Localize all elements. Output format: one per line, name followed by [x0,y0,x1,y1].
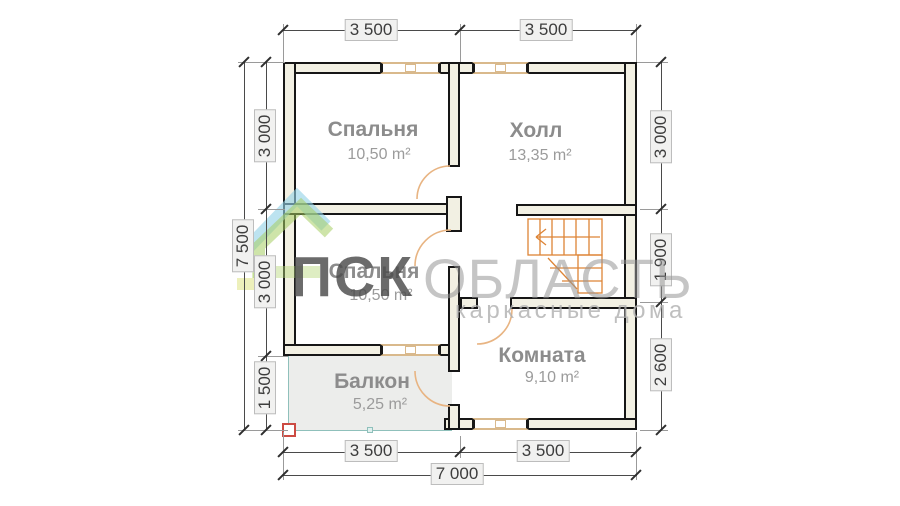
room-label-bedroom2: Спальня [329,260,420,284]
room-area-balcony: 5,25 m² [353,396,407,414]
dim-left-1: 3 000 [254,110,276,163]
balcony-edge-marker [367,427,373,433]
dim-left-total: 7 500 [232,220,254,273]
dim-right-3: 2 600 [650,339,672,392]
dim-right-2: 1 900 [650,234,672,287]
door-arc-room [477,309,512,344]
room-area-bedroom2: 10,50 m² [349,287,412,305]
dim-bottom-right: 3 500 [517,440,570,462]
wall-middle-horizontal [283,203,460,215]
wall-room-door-stub [460,297,478,309]
room-label-hall: Холл [510,119,563,143]
wall-stairs-bottom [510,297,637,309]
wall-top [283,62,637,74]
room-area-bedroom1: 10,50 m² [347,146,410,164]
wall-right [624,62,637,430]
room-label-balcony: Балкон [334,370,410,394]
window-hall [472,62,529,74]
stairs [528,219,602,293]
window-bedroom1 [380,62,441,74]
dim-right-1: 3 000 [650,111,672,164]
wall-stairs-top [516,204,637,216]
dim-left-3: 1 500 [254,362,276,415]
dim-bottom-left: 3 500 [345,440,398,462]
wall-center-cross-stub [446,196,462,232]
dim-left-2: 3 000 [254,256,276,309]
floor-plan-canvas: Спальня 10,50 m² Холл 13,35 m² Спальня 1… [0,0,900,506]
room-label-bedroom1: Спальня [328,118,419,142]
wall-center-upper [448,62,460,167]
wall-center-lower [448,266,460,372]
window-bedroom2-balcony [380,344,441,356]
dim-top-left: 3 500 [345,19,398,41]
room-label-room: Комната [498,344,585,368]
wall-center-bottom [448,404,460,430]
window-room [472,418,529,430]
door-arc-bedroom1 [417,166,450,199]
dim-top-right: 3 500 [520,19,573,41]
room-area-room: 9,10 m² [525,369,579,387]
dim-bottom-total: 7 000 [431,463,484,485]
room-area-hall: 13,35 m² [508,147,571,165]
door-arc-bedroom2 [415,230,451,266]
